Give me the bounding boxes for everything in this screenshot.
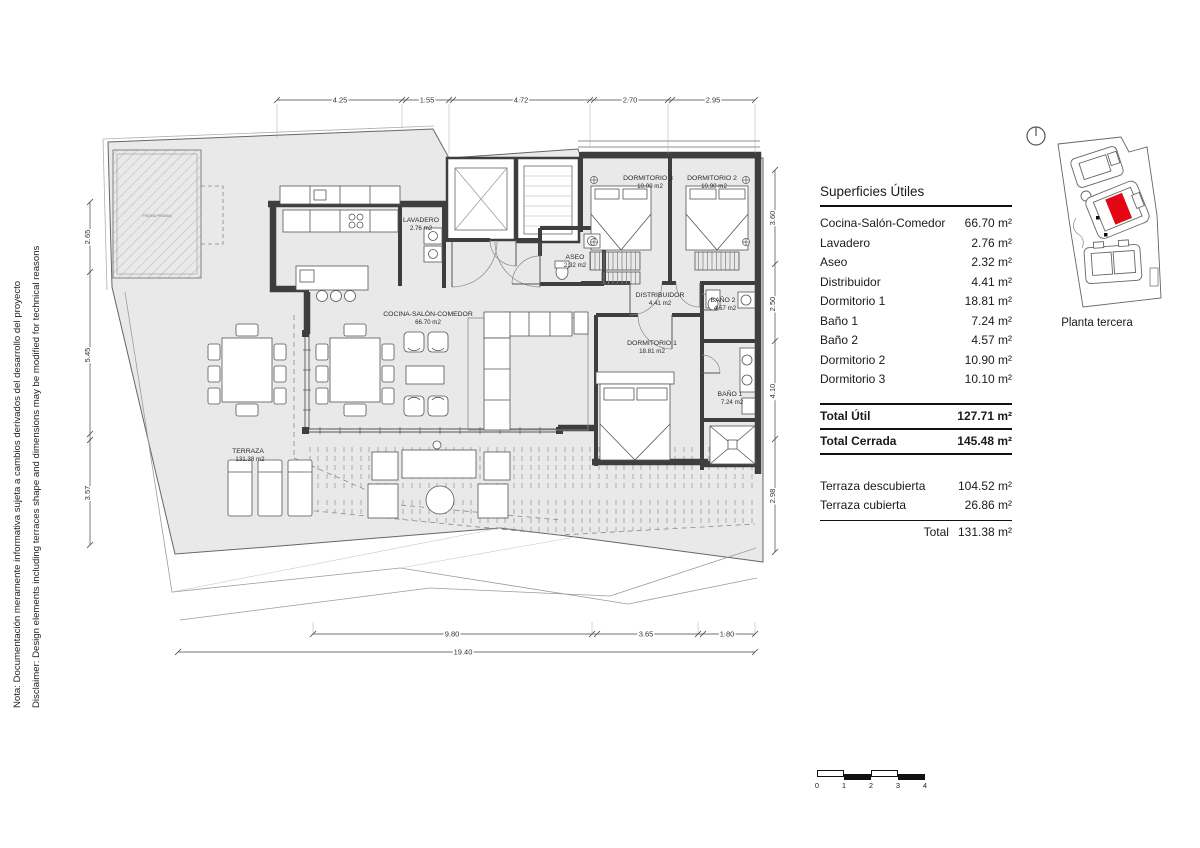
dim-bottom-1: 9.80: [445, 630, 460, 639]
label-terraza: TERRAZA: [232, 448, 264, 455]
site-plan-svg: Planta tercera: [1010, 112, 1200, 334]
dim-top-5: 2.95: [706, 96, 721, 105]
table-row: Baño 17.24 m²: [820, 314, 1012, 334]
label-dormitorio3-area: 10.00 m2: [637, 183, 663, 190]
table-row: Dormitorio 310.10 m²: [820, 372, 1012, 392]
dim-bottom-2: 3.65: [639, 630, 654, 639]
label-dormitorio3: DORMITORIO 3: [623, 175, 673, 182]
total-util-row: Total Útil127.71 m²: [820, 405, 1012, 430]
table-row: Terraza descubierta104.52 m²: [820, 479, 1012, 499]
label-bano1: BAÑO 1: [718, 389, 743, 398]
dim-top-2: 1.55: [420, 96, 435, 105]
scale-num: 3: [896, 781, 900, 790]
dim-top-4: 2.70: [623, 96, 638, 105]
terrace-total-row: Total131.38 m²: [820, 525, 1012, 545]
dim-right-1: 3.60: [768, 211, 777, 226]
title-rule: [820, 205, 1012, 207]
table-row: Baño 24.57 m²: [820, 333, 1012, 353]
table-row: Lavadero2.76 m²: [820, 236, 1012, 256]
note-nota: Nota: Documentación meramente informativ…: [10, 246, 26, 708]
areas-table: Superficies Útiles Cocina-Salón-Comedor6…: [820, 184, 1012, 544]
label-cocina: COCINA-SALÓN-COMEDOR: [383, 309, 473, 318]
dim-left-1: 2.65: [83, 230, 92, 245]
label-lavadero: LAVADERO: [403, 217, 439, 224]
table-row: Dormitorio 210.90 m²: [820, 353, 1012, 373]
north-icon: [1027, 127, 1045, 145]
label-pergola: PISCINA PRIVADA: [143, 214, 173, 218]
table-row: Distribuidor4.41 m²: [820, 275, 1012, 295]
table-title: Superficies Útiles: [820, 184, 1012, 205]
dim-right-4: 2.98: [768, 489, 777, 504]
dim-right-3: 4.10: [768, 384, 777, 399]
table-row: Dormitorio 118.81 m²: [820, 294, 1012, 314]
table-row: Terraza cubierta26.86 m²: [820, 498, 1012, 518]
scale-segment: [844, 774, 871, 780]
note-disclaimer: Disclaimer: Design elements including te…: [29, 246, 45, 708]
floor-plan-svg: COCINA-SALÓN-COMEDOR 66.70 m2 LAVADERO 2…: [55, 78, 790, 663]
label-distribuidor: DISTRIBUIDOR: [636, 292, 685, 299]
scale-segment: [817, 770, 844, 777]
table-rows: Cocina-Salón-Comedor66.70 m² Lavadero2.7…: [820, 216, 1012, 392]
scale-num: 2: [869, 781, 873, 790]
total-cerrada-row: Total Cerrada145.48 m²: [820, 430, 1012, 455]
site-plan: Planta tercera: [1010, 112, 1200, 339]
dim-left-3: 3.57: [83, 486, 92, 501]
dim-left-2: 5.45: [83, 348, 92, 363]
label-dormitorio1: DORMITORIO 1: [627, 340, 677, 347]
label-cocina-area: 66.70 m2: [415, 319, 441, 326]
dim-right-2: 2.50: [768, 297, 777, 312]
label-bano2: BAÑO 2: [711, 295, 736, 304]
scale-num: 1: [842, 781, 846, 790]
dim-bottom-3: 1.80: [720, 630, 735, 639]
scale-bar: 0 1 2 3 4: [817, 770, 927, 792]
floor-plan: COCINA-SALÓN-COMEDOR 66.70 m2 LAVADERO 2…: [55, 78, 790, 668]
scale-segment: [871, 770, 898, 777]
scale-segment: [898, 774, 925, 780]
label-dormitorio1-area: 18.81 m2: [639, 348, 665, 355]
label-dormitorio2-area: 10.90 m2: [701, 183, 727, 190]
terrace-rows: Terraza descubierta104.52 m² Terraza cub…: [820, 479, 1012, 521]
table-row: Cocina-Salón-Comedor66.70 m²: [820, 216, 1012, 236]
label-dormitorio2: DORMITORIO 2: [687, 175, 737, 182]
scale-num: 0: [815, 781, 819, 790]
totals: Total Útil127.71 m² Total Cerrada145.48 …: [820, 403, 1012, 455]
floorplan-page: { "notes": { "nota": "Nota: Documentació…: [0, 0, 1200, 848]
scale-num: 4: [923, 781, 927, 790]
label-terraza-area: 131.38 m2: [235, 456, 265, 463]
label-bano2-area: 4.57 m2: [714, 305, 737, 312]
site-buildings: [1070, 145, 1158, 286]
dim-top-3: 4.72: [514, 96, 529, 105]
site-plan-caption: Planta tercera: [1061, 317, 1133, 329]
table-row: Aseo2.32 m²: [820, 255, 1012, 275]
dim-top-1: 4.25: [333, 96, 348, 105]
label-aseo-area: 2.32 m2: [564, 262, 587, 269]
label-distribuidor-area: 4.41 m2: [649, 300, 672, 307]
dim-bottom-total: 19.40: [454, 648, 473, 657]
legal-notes: Nota: Documentación meramente informativ…: [10, 246, 45, 708]
label-bano1-area: 7.24 m2: [721, 399, 744, 406]
label-aseo: ASEO: [566, 254, 585, 261]
label-lavadero-area: 2.76 m2: [410, 225, 433, 232]
